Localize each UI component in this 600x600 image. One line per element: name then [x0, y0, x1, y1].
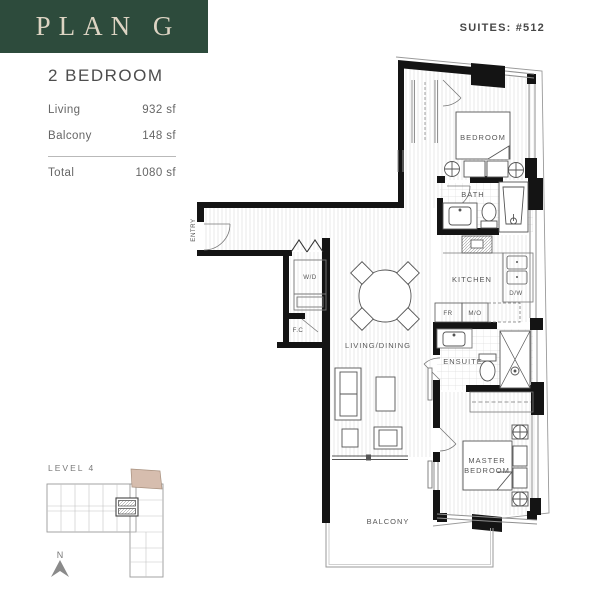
faucet	[459, 209, 461, 211]
entry-label: ENTRY	[190, 218, 197, 241]
wall-kitchen-south	[433, 322, 497, 329]
microwave-label: M/O	[468, 310, 481, 317]
balcony-window-frame	[428, 461, 432, 488]
column-master-s2	[527, 511, 537, 520]
wall-bath-north-stub	[437, 176, 445, 183]
kitchen-label: KITCHEN	[452, 275, 492, 284]
shower-drain-dot	[514, 370, 516, 372]
window-master-west	[434, 462, 438, 490]
keyplan-unit-lines	[47, 484, 163, 577]
column-top	[471, 63, 505, 88]
keyplan-highlighted-unit	[131, 469, 162, 489]
wall-closet-divider	[283, 313, 305, 319]
wall-master-west-b	[433, 452, 440, 462]
side-table	[342, 429, 358, 447]
ensuite-label: ENSUITE	[443, 357, 483, 366]
keyplan-core	[116, 498, 138, 516]
column-ne	[527, 74, 536, 84]
dishwasher-label: D/W	[509, 290, 523, 297]
balcony	[326, 523, 493, 567]
wall-closet-west	[283, 250, 289, 348]
tv-console	[428, 368, 432, 400]
wall-master-west-a	[433, 392, 440, 428]
fridge-label: FR	[443, 310, 452, 317]
pillow	[513, 468, 527, 488]
cooktop-center	[471, 240, 483, 248]
floorplan-drawing: BEDROOM BATH KITCHEN FR M/O D/W	[0, 0, 600, 600]
wall-ensuite-west-b	[433, 380, 440, 392]
north-arrow: N	[51, 550, 69, 577]
slider-handle	[366, 455, 371, 461]
level-label: LEVEL 4	[48, 463, 95, 473]
bedroom-label: BEDROOM	[460, 133, 506, 142]
faucet	[516, 276, 518, 278]
wall-corridor-top	[200, 202, 404, 208]
coffee-table	[376, 377, 395, 411]
north-arrow-icon	[51, 560, 69, 577]
wall-west-upper	[398, 64, 404, 208]
column-tub	[528, 178, 543, 210]
north-label: N	[57, 550, 64, 560]
pillow	[464, 161, 485, 177]
washer-dryer-label: W/D	[303, 274, 317, 281]
balcony-label: BALCONY	[367, 517, 410, 526]
fan-coil-label: F.C	[293, 327, 304, 334]
balcony-rail-inner	[329, 523, 491, 565]
living-dining-label: LIVING/DINING	[345, 341, 411, 350]
balcony-rail-outer	[326, 523, 493, 567]
toilet-bowl	[482, 203, 496, 221]
pillow	[487, 161, 508, 177]
wall-entry-stub	[197, 202, 204, 222]
column-kitchen-e	[530, 318, 543, 330]
toilet-tank	[481, 221, 497, 228]
pillow	[513, 446, 527, 466]
faucet	[453, 334, 455, 336]
bath-label: BATH	[461, 190, 484, 199]
keyplan: LEVEL 4	[47, 463, 163, 577]
faucet	[516, 261, 518, 263]
column-bedroom-se	[525, 158, 537, 178]
wall-corridor-bottom	[197, 250, 292, 256]
master-bedroom-label-2: BEDROOM	[464, 466, 510, 475]
master-bedroom-label-1: MASTER	[468, 456, 505, 465]
